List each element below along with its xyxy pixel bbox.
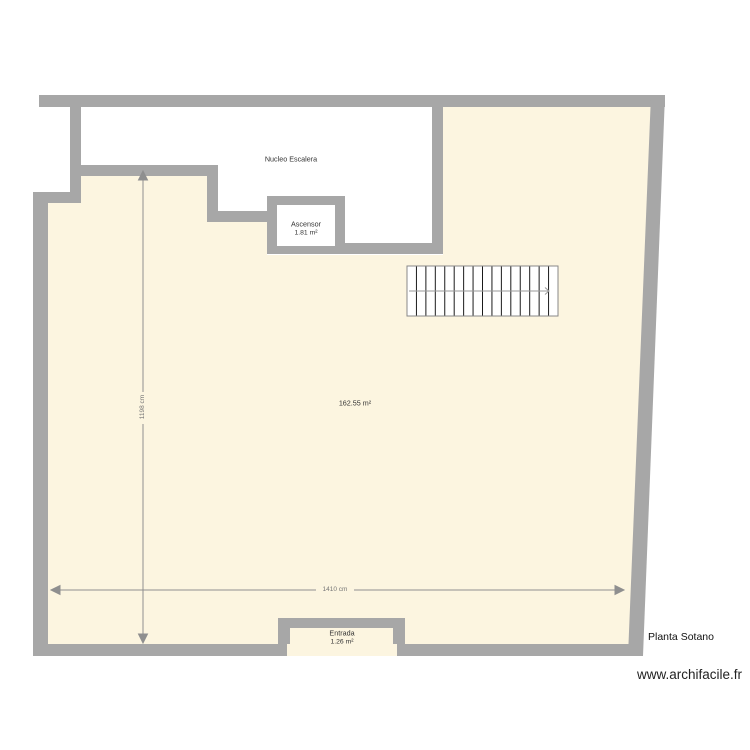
wall-staircore-right[interactable] <box>432 95 443 254</box>
watermark-url: www.archifacile.fr <box>637 667 742 682</box>
plan-title: Planta Sotano <box>648 631 714 643</box>
entrance-label: Entrada 1.26 m² <box>329 630 354 647</box>
vertical-dimension-value: 1198 cm <box>139 395 147 419</box>
wall-entrance-left[interactable] <box>278 618 290 644</box>
entrance-area: 1.26 m² <box>329 638 354 646</box>
main-room-floor[interactable] <box>48 107 651 644</box>
wall-top[interactable] <box>39 95 665 107</box>
wall-bottom-right[interactable] <box>397 644 643 656</box>
main-room-area-label: 162.55 m² <box>339 400 371 409</box>
wall-bottom-left[interactable] <box>33 644 287 656</box>
horizontal-dimension-value: 1410 cm <box>323 586 348 594</box>
wall-staircore-step-horizontal[interactable] <box>207 211 277 222</box>
staircase-symbol[interactable] <box>407 266 558 316</box>
wall-entrance-right[interactable] <box>393 618 405 644</box>
elevator-name: Ascensor <box>291 221 321 230</box>
floorplan-drawing <box>0 0 750 750</box>
floorplan-canvas[interactable]: Nucleo Escalera Ascensor 1.81 m² 162.55 … <box>0 0 750 750</box>
wall-left[interactable] <box>33 192 48 656</box>
stair-core-label: Nucleo Escalera <box>265 156 317 165</box>
wall-upper-left[interactable] <box>70 95 81 203</box>
elevator-area: 1.81 m² <box>291 229 321 237</box>
wall-entrance-top[interactable] <box>278 618 405 628</box>
elevator-label: Ascensor 1.81 m² <box>291 221 321 238</box>
entrance-name: Entrada <box>329 630 354 639</box>
